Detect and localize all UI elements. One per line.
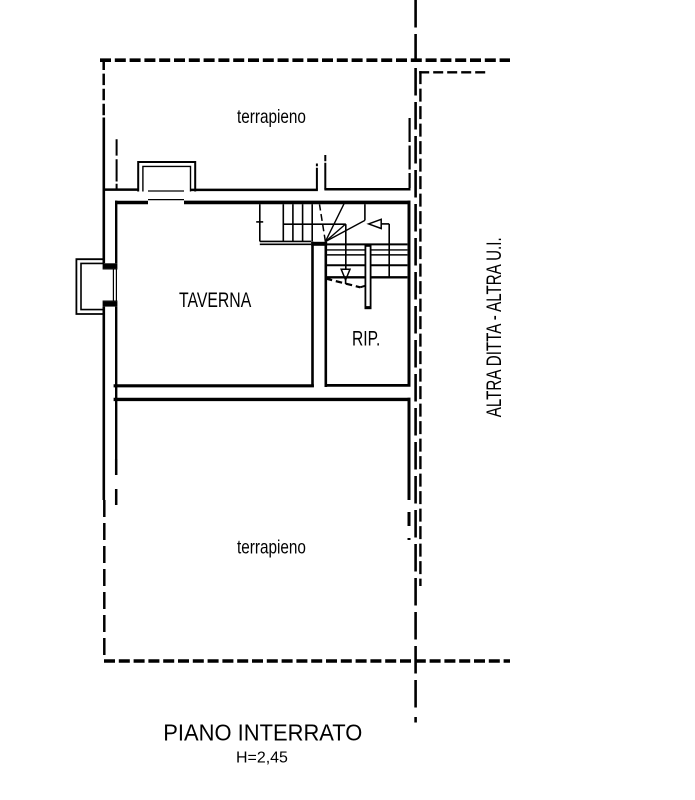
- svg-text:terrapieno: terrapieno: [237, 105, 306, 127]
- svg-text:TAVERNA: TAVERNA: [179, 289, 252, 313]
- svg-text:terrapieno: terrapieno: [237, 536, 306, 558]
- svg-text:RIP.: RIP.: [352, 326, 380, 350]
- svg-text:ALTRA DITTA - ALTRA U.I.: ALTRA DITTA - ALTRA U.I.: [481, 237, 505, 417]
- svg-text:PIANO INTERRATO: PIANO INTERRATO: [163, 720, 362, 746]
- svg-text:H=2,45: H=2,45: [236, 750, 288, 767]
